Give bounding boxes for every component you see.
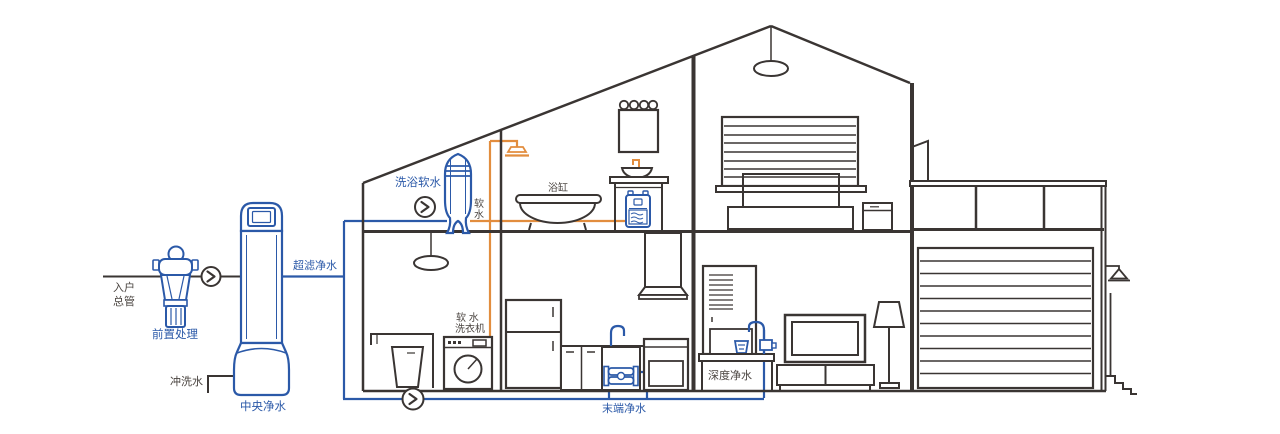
- label-pre-treatment: 前置处理: [152, 327, 198, 341]
- laundry-ceiling-lamp-icon: [414, 233, 448, 270]
- parapet: [912, 141, 928, 181]
- label-washer-line1: 软 水: [456, 311, 479, 324]
- garage-roller-door: [918, 248, 1093, 388]
- label-shower-softener: 洗浴软水: [395, 175, 441, 189]
- bathtub: [516, 195, 601, 230]
- label-washer-line2: 洗衣机: [455, 322, 485, 335]
- terrace-rail: [910, 181, 1106, 186]
- garage-section: [910, 141, 1106, 391]
- windowsill: [716, 186, 866, 192]
- oven: [644, 339, 688, 390]
- bed: [728, 207, 853, 229]
- exterior-wall-lamp-icon: [1106, 266, 1130, 281]
- floor-lamp-icon: [874, 302, 904, 388]
- label-ultra-filtration: 超滤净水: [293, 258, 337, 272]
- shower-head-icon: [505, 147, 529, 156]
- tv-stand: [777, 365, 874, 390]
- shower-softener-unit: [445, 154, 471, 233]
- fridge: [506, 300, 561, 388]
- label-central-purifier: 中央净水: [240, 399, 286, 413]
- under-sink-heater-unit: [626, 191, 650, 227]
- kitchen-cabinets: [561, 346, 602, 390]
- washing-machine: [444, 337, 492, 389]
- label-flush-water: 冲洗水: [170, 374, 203, 388]
- pre-filter-unit: [153, 247, 198, 328]
- label-terminal-purifier: 末端净水: [602, 401, 646, 415]
- whole-house-water-diagram: 入户 总管 前置处理 冲洗水 中央净水 超滤净水 洗浴软水 软 水 浴缸 软 水…: [0, 0, 1280, 434]
- label-inlet-main-line1: 入户: [113, 280, 135, 294]
- nightstand: [863, 203, 892, 230]
- laundry-sink: [371, 334, 433, 388]
- flow-indicator-icon: [415, 197, 435, 217]
- flow-indicator-icon: [403, 389, 424, 410]
- label-deep-purifier: 深度净水: [708, 368, 752, 382]
- vanity-lights-icon: [620, 101, 657, 109]
- flow-indicator-icon: [202, 267, 221, 286]
- range-hood: [639, 233, 687, 299]
- attic-pendant-lamp-icon: [754, 27, 788, 76]
- roof-right-slope: [771, 26, 910, 83]
- central-purifier-unit: [234, 203, 289, 395]
- label-inlet-main-line2: 总管: [113, 294, 135, 308]
- under-sink-filter-unit: [604, 367, 638, 386]
- tv: [785, 315, 865, 362]
- label-soft-water-vertical: 软 水: [474, 197, 487, 221]
- label-bathtub: 浴缸: [548, 181, 568, 194]
- diagram-canvas: 入户 总管 前置处理 冲洗水 中央净水 超滤净水 洗浴软水 软 水 浴缸 软 水…: [0, 0, 1280, 434]
- water-cup-icon: [735, 341, 748, 353]
- entry-steps: [1106, 376, 1137, 394]
- vanity-mirror: [619, 110, 658, 152]
- kitchen-sink-faucet-icon: [611, 326, 624, 346]
- roof-left-slope: [363, 26, 771, 183]
